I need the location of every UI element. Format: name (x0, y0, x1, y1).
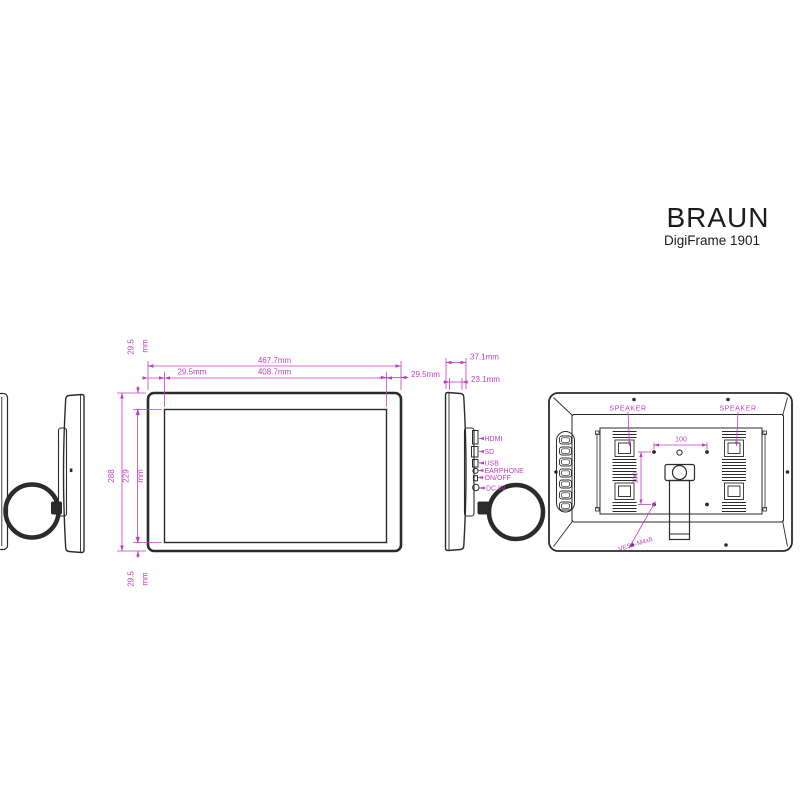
corner-bevel-br (783, 521, 788, 547)
vesa-hole-tl (652, 450, 656, 454)
hdmi-port (473, 431, 479, 445)
dim-depth-body: 23.1mm (471, 375, 500, 384)
model-subtitle: DigiFrame 1901 (664, 233, 760, 248)
label-sd: SD (485, 449, 495, 456)
dim-vesa-width: 100 (675, 437, 687, 444)
side-detail-dot (70, 469, 73, 473)
front-frame (148, 393, 401, 551)
dim-bezel-top-unit: mm (141, 339, 150, 353)
corner-bevel-tl (554, 398, 574, 417)
vesa-mount (652, 450, 709, 507)
stand-bracket-hub (673, 466, 687, 480)
label-power: ON/OFF (485, 475, 511, 482)
stand-ring-clip-right (478, 502, 490, 515)
rear-inner-face (572, 415, 784, 523)
technical-drawing: BRAUN DigiFrame 1901 467.7mm 29.5 (0, 0, 800, 800)
dim-display-width: 408.7mm (258, 368, 292, 377)
stand-post (670, 481, 690, 540)
sd-slot (472, 447, 479, 458)
label-speaker-left: SPEAKER (609, 406, 646, 413)
stand-ring-right (489, 485, 543, 539)
dim-display-height-unit: mm (136, 469, 145, 483)
corner-bevel-bl (554, 521, 574, 547)
stand-ring-clip (51, 502, 62, 515)
corner-bevel-tr (783, 398, 788, 417)
side-view-dimensions: 37.1mm 23.1mm (443, 353, 500, 391)
front-view-dimensions: 467.7mm 29.5mm 408.7mm 29.5mm 288 229 mm (107, 339, 440, 587)
dim-overall-height: 288 (107, 469, 116, 483)
dim-bezel-left: 29.5mm (178, 368, 207, 377)
dim-vesa-height: 100 (633, 472, 640, 484)
screw-dots (554, 398, 789, 547)
label-speaker-right: SPEAKER (719, 406, 756, 413)
vesa-hole-br (705, 503, 709, 507)
display-area (165, 410, 387, 543)
dim-bezel-top: 29.5 (127, 339, 136, 355)
stand-assembly (665, 465, 695, 540)
dim-bezel-bottom: 29.5 (127, 571, 136, 587)
label-earphone: EARPHONE (485, 468, 525, 475)
dim-bezel-right: 29.5mm (411, 370, 440, 379)
brand-title: BRAUN (666, 202, 769, 233)
stand-bracket (665, 465, 695, 481)
label-usb: USB (485, 461, 500, 468)
front-view (148, 393, 401, 551)
speaker-grille-left (613, 432, 637, 512)
rear-outer-shell (549, 393, 792, 551)
vesa-hole-tr (705, 450, 709, 454)
dim-depth-overall: 37.1mm (470, 353, 499, 362)
label-dc-in: DC IN (486, 486, 505, 493)
edge-strip-partial (0, 394, 8, 550)
stand-ring (6, 485, 59, 538)
rear-view: SPEAKER SPEAKER 100 100 VESA-M4x8 (549, 393, 792, 553)
speaker-grille-right (722, 432, 746, 512)
dim-overall-width: 467.7mm (258, 356, 292, 365)
center-hole (677, 450, 682, 455)
left-side-view (0, 394, 84, 553)
label-hdmi: HDMI (485, 436, 503, 443)
dim-display-height: 229 (122, 469, 131, 483)
title-block: BRAUN DigiFrame 1901 (664, 202, 770, 248)
dim-bezel-bottom-unit: mm (141, 572, 150, 586)
usb-port (473, 460, 479, 468)
